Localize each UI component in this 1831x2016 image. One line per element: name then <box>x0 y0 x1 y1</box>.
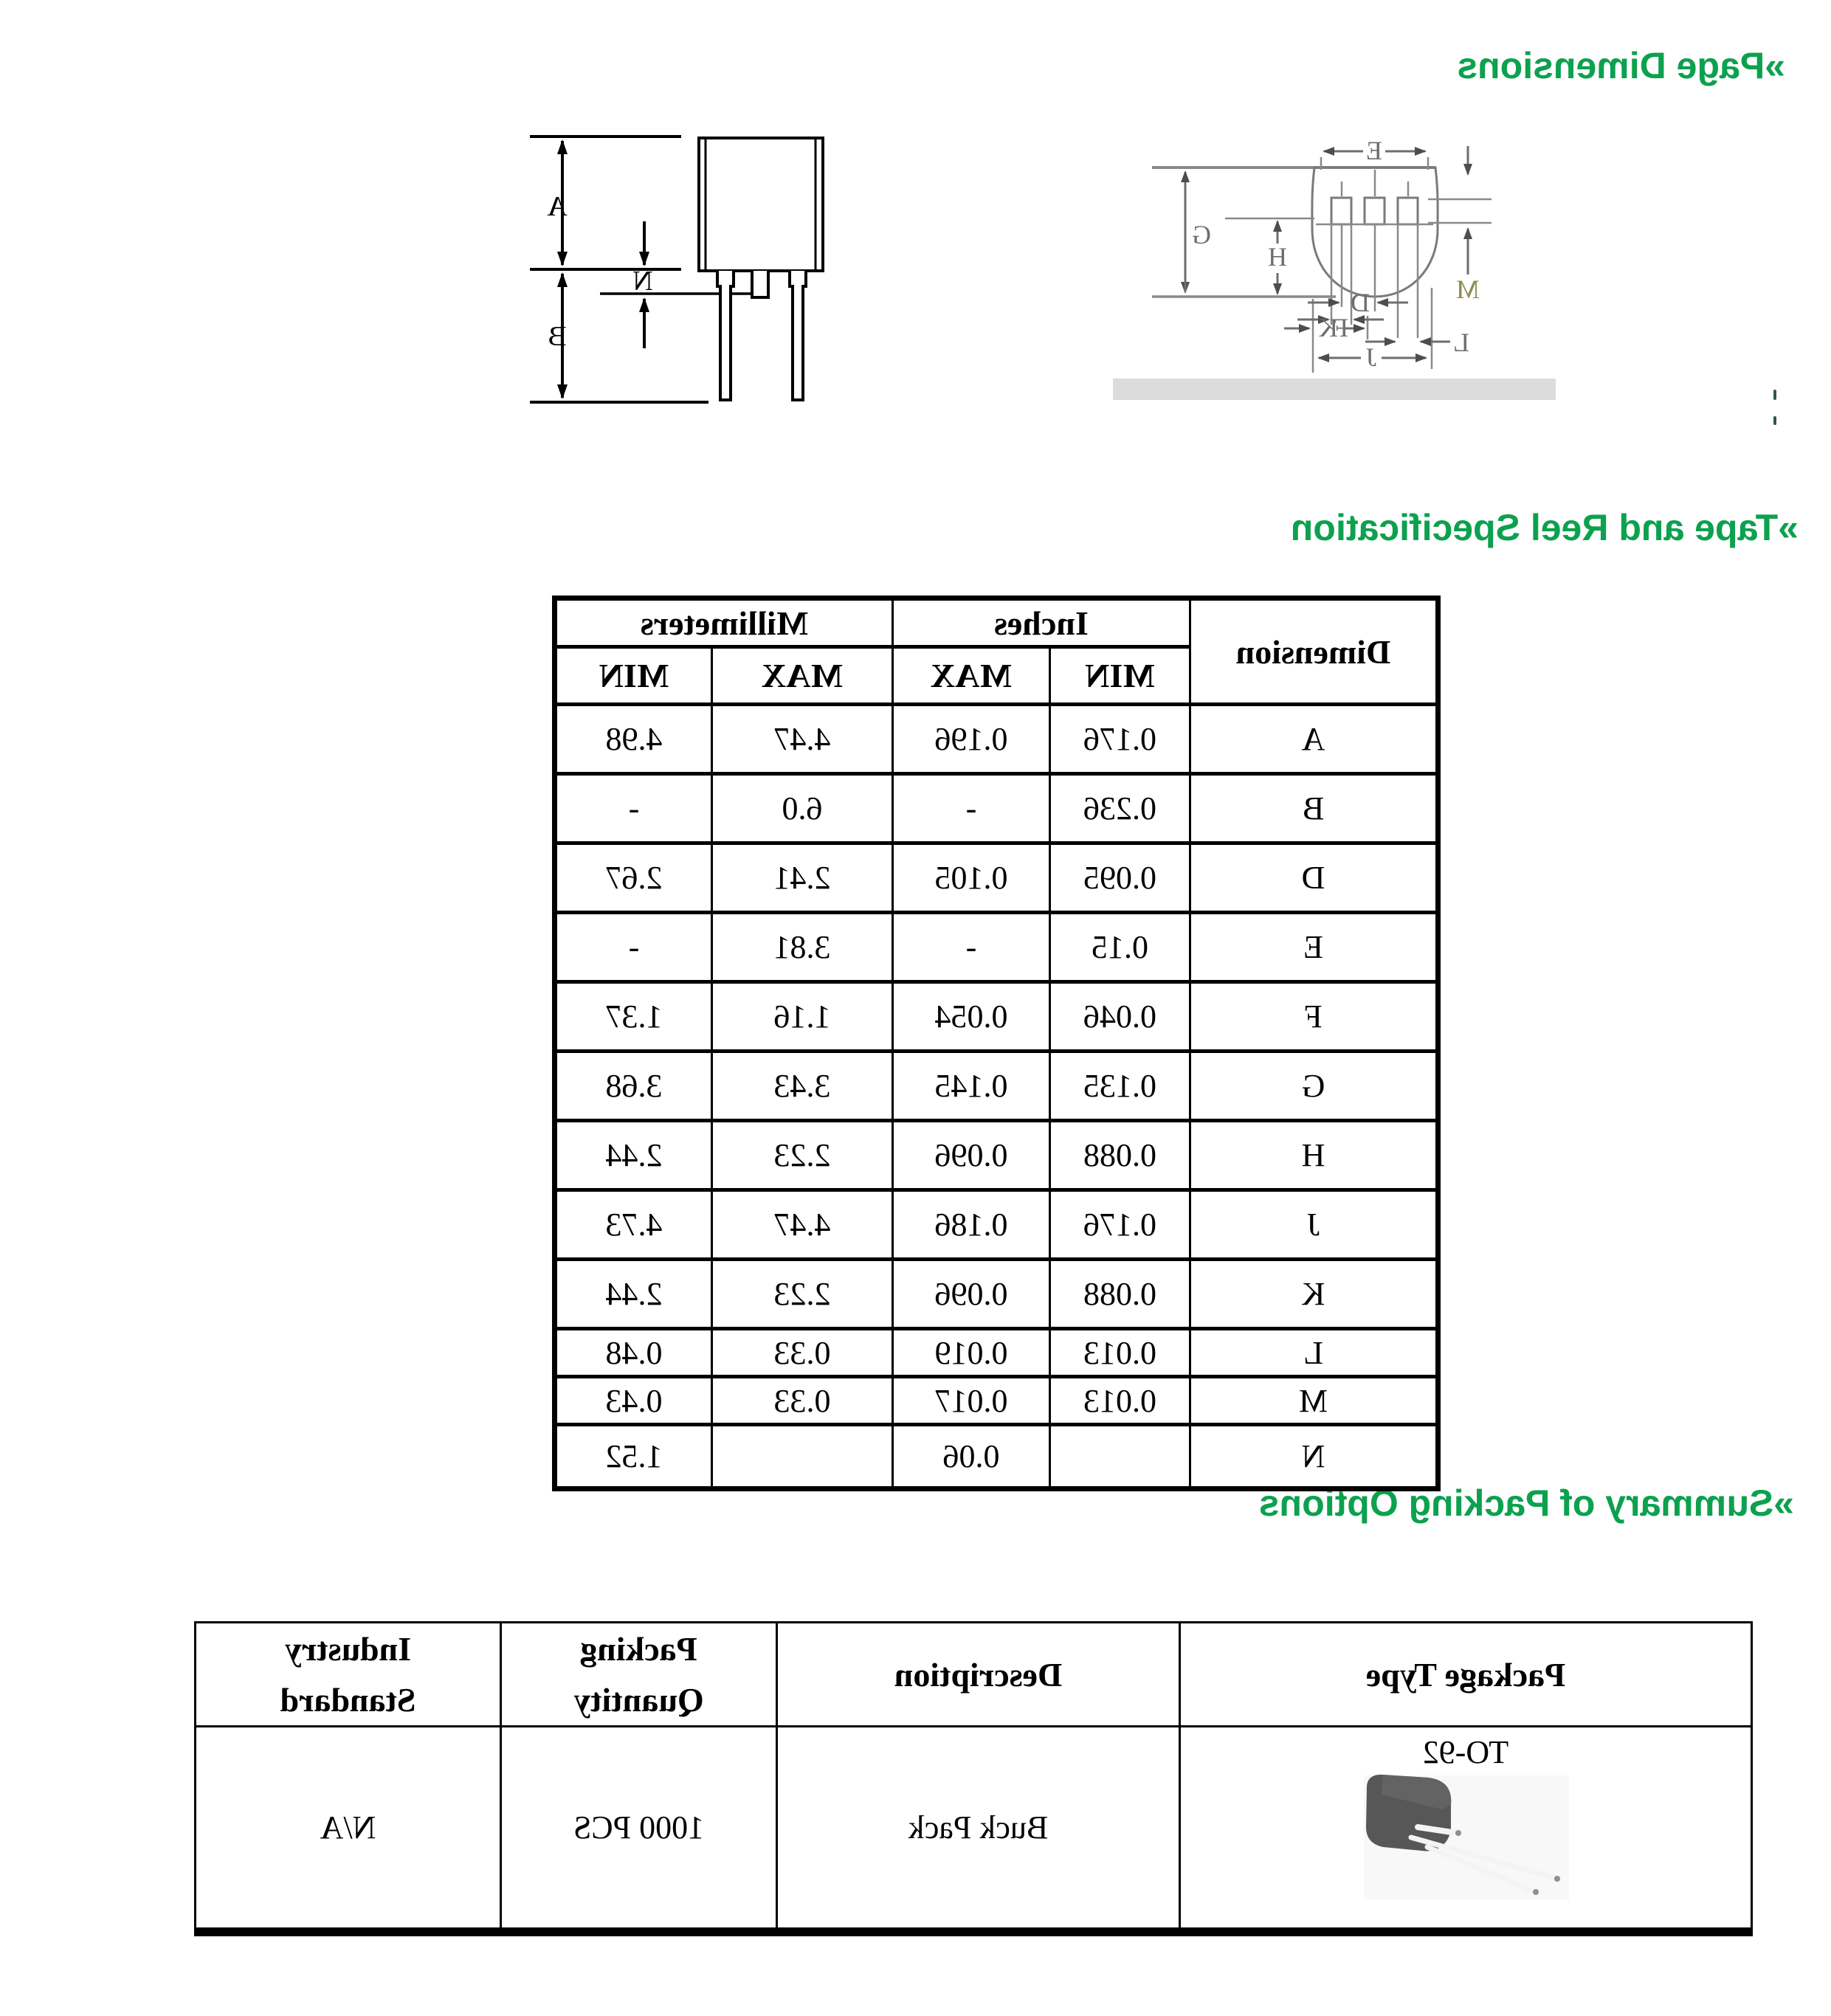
heading-package-dimensions: »Page Dimensions <box>1457 46 1785 86</box>
center-lead-stub-outline <box>752 271 768 297</box>
dims-cell-value: 0.186 <box>893 1190 1050 1260</box>
dim-label-D: D <box>1351 288 1370 317</box>
dims-cell-value: 0.096 <box>893 1260 1050 1329</box>
dims-table-row: K0.0880.0962.232.44 <box>554 1260 1438 1329</box>
heading-tape-reel-specification: »Tape and Reel Specification <box>1291 508 1799 548</box>
dims-cell-dimension: H <box>1190 1121 1438 1190</box>
package-side-view-drawing: A B N <box>529 118 824 413</box>
packing-options-table: Package Type Description Packing Quantit… <box>194 1621 1753 1936</box>
lead-cross-section <box>1398 198 1418 224</box>
packing-cell-packing-quantity: 1000 PCS <box>501 1727 777 1932</box>
dim-label-E: E <box>1366 136 1382 165</box>
dims-subheader: MAX <box>893 647 1050 705</box>
dims-cell-value: 0.013 <box>1050 1377 1190 1425</box>
dims-cell-value: 1.16 <box>712 982 893 1052</box>
dims-cell-value: 0.06 <box>893 1425 1050 1489</box>
packing-header-packing-quantity: Packing Quantity <box>501 1623 777 1727</box>
dims-cell-value: 0.176 <box>1050 1190 1190 1260</box>
packing-data-row: TO-92 <box>196 1727 1752 1932</box>
dims-cell-value: 4.47 <box>712 1190 893 1260</box>
dims-cell-value: 0.088 <box>1050 1121 1190 1190</box>
dims-cell-value: 1.37 <box>554 982 711 1052</box>
scan-shadow-bar <box>1113 379 1556 400</box>
packing-cell-description: Buck Pack <box>777 1727 1180 1932</box>
dims-cell-dimension: K <box>1190 1260 1438 1329</box>
dims-cell-dimension: J <box>1190 1190 1438 1260</box>
dims-cell-dimension: L <box>1190 1329 1438 1377</box>
dims-table-row: L0.0130.0190.330.48 <box>554 1329 1438 1377</box>
dims-table-row: F0.0460.0541.161.37 <box>554 982 1438 1052</box>
dims-cell-dimension: G <box>1190 1052 1438 1121</box>
package-body-outline <box>699 138 823 271</box>
dims-cell-value: - <box>893 774 1050 843</box>
dims-table-row: D0.0950.1052.412.67 <box>554 843 1438 913</box>
dims-cell-value: 2.67 <box>554 843 711 913</box>
dims-subheader: MIN <box>554 647 711 705</box>
scan-artifact-tick <box>1773 390 1776 400</box>
dims-cell-value: 0.33 <box>712 1329 893 1377</box>
dims-cell-value: - <box>554 774 711 843</box>
dims-header-inches: Inches <box>893 598 1190 647</box>
dims-cell-value: 0.095 <box>1050 843 1190 913</box>
dims-cell-value: 0.135 <box>1050 1052 1190 1121</box>
dims-cell-value <box>1050 1425 1190 1489</box>
packing-quantity-line2: Quantity <box>502 1674 776 1725</box>
lead-cross-section <box>1331 198 1351 224</box>
packing-quantity-line1: Packing <box>502 1623 776 1674</box>
dims-cell-value: 0.236 <box>1050 774 1190 843</box>
dims-cell-value: 3.81 <box>712 913 893 982</box>
dims-cell-value: 0.046 <box>1050 982 1190 1052</box>
dims-cell-value: 4.73 <box>554 1190 711 1260</box>
lead-tip <box>1554 1876 1560 1882</box>
dims-cell-value: 0.176 <box>1050 705 1190 774</box>
dimensions-table-body: A0.1760.1964.474.98B0.236-6.0-D0.0950.10… <box>554 705 1438 1489</box>
dims-cell-value: - <box>893 913 1050 982</box>
dims-cell-value: 2.41 <box>712 843 893 913</box>
dims-cell-value: 2.44 <box>554 1260 711 1329</box>
dims-table-row: G0.1350.1453.433.68 <box>554 1052 1438 1121</box>
dims-cell-value: 3.68 <box>554 1052 711 1121</box>
dim-label-L: L <box>1453 328 1469 357</box>
dim-label-G: G <box>1192 220 1211 249</box>
dims-cell-value: 0.145 <box>893 1052 1050 1121</box>
dims-cell-value: 2.23 <box>712 1121 893 1190</box>
dims-cell-value: 1.52 <box>554 1425 711 1489</box>
dims-table-row: J0.1760.1864.474.73 <box>554 1190 1438 1260</box>
dim-label-A: A <box>547 191 568 222</box>
lead-tip <box>1455 1830 1461 1836</box>
package-type-value: TO-92 <box>1423 1733 1509 1771</box>
dims-cell-dimension: A <box>1190 705 1438 774</box>
dims-cell-value: 0.48 <box>554 1329 711 1377</box>
industry-standard-line2: Standard <box>196 1674 500 1725</box>
dims-subheader: MAX <box>712 647 893 705</box>
dims-cell-dimension: B <box>1190 774 1438 843</box>
lead-outline <box>790 271 806 400</box>
dims-cell-dimension: F <box>1190 982 1438 1052</box>
package-type-content: TO-92 <box>1181 1727 1751 1907</box>
dims-cell-value: 4.98 <box>554 705 711 774</box>
dims-cell-value: 0.088 <box>1050 1260 1190 1329</box>
packing-cell-industry-standard: N/A <box>196 1727 501 1932</box>
dims-table-row: A0.1760.1964.474.98 <box>554 705 1438 774</box>
dims-cell-value: 2.23 <box>712 1260 893 1329</box>
dims-cell-value: 3.43 <box>712 1052 893 1121</box>
dims-cell-value: 0.017 <box>893 1377 1050 1425</box>
packing-header-row: Package Type Description Packing Quantit… <box>196 1623 1752 1727</box>
packing-header-package-type: Package Type <box>1180 1623 1752 1727</box>
dims-cell-dimension: D <box>1190 843 1438 913</box>
dims-cell-dimension: M <box>1190 1377 1438 1425</box>
dims-cell-value: 0.013 <box>1050 1329 1190 1377</box>
dims-cell-value: 0.105 <box>893 843 1050 913</box>
dim-label-M: M <box>1456 275 1480 304</box>
dims-header-dimension: Dimension <box>1190 598 1438 705</box>
dims-header-group-row: Dimension Inches Millimeters <box>554 598 1438 647</box>
lead-cross-section <box>1365 198 1385 224</box>
dim-label-N: N <box>632 266 652 297</box>
dims-cell-value: - <box>554 913 711 982</box>
dimensions-table: Dimension Inches Millimeters MIN MAX MAX… <box>552 596 1441 1491</box>
to92-package-image <box>1362 1774 1569 1907</box>
packing-header-industry-standard: Industry Standard <box>196 1623 501 1727</box>
dims-cell-value: 0.33 <box>712 1377 893 1425</box>
dims-table-row: B0.236-6.0- <box>554 774 1438 843</box>
lead-outline <box>717 271 734 400</box>
dim-label-J: J <box>1366 342 1376 372</box>
dims-cell-value: 0.054 <box>893 982 1050 1052</box>
dims-cell-value: 0.43 <box>554 1377 711 1425</box>
dims-cell-value: 6.0 <box>712 774 893 843</box>
dims-cell-value: 2.44 <box>554 1121 711 1190</box>
dims-cell-value <box>712 1425 893 1489</box>
dims-cell-value: 0.019 <box>893 1329 1050 1377</box>
packing-header-description: Description <box>777 1623 1180 1727</box>
lead-tip <box>1533 1889 1539 1895</box>
dims-subheader: MIN <box>1050 647 1190 705</box>
dims-cell-value: 0.15 <box>1050 913 1190 982</box>
dims-table-row: E0.15-3.81- <box>554 913 1438 982</box>
industry-standard-line1: Industry <box>196 1623 500 1674</box>
dims-cell-dimension: E <box>1190 913 1438 982</box>
dims-header-millimeters: Millimeters <box>554 598 892 647</box>
datasheet-page: »Page Dimensions »Tape and Reel Specific… <box>0 0 1831 2016</box>
dims-table-row: H0.0880.0962.232.44 <box>554 1121 1438 1190</box>
package-bottom-view-drawing: E G H M F L D K J <box>1107 118 1594 413</box>
dim-label-K: K <box>1319 313 1338 342</box>
packing-cell-package-type: TO-92 <box>1180 1727 1752 1932</box>
scan-artifact-tick <box>1773 416 1776 425</box>
dims-cell-dimension: N <box>1190 1425 1438 1489</box>
dim-label-B: B <box>548 321 566 352</box>
dims-cell-value: 0.196 <box>893 705 1050 774</box>
dims-table-row: M0.0130.0170.330.43 <box>554 1377 1438 1425</box>
dims-table-row: N0.061.52 <box>554 1425 1438 1489</box>
dim-label-H: H <box>1268 242 1287 272</box>
dims-cell-value: 0.096 <box>893 1121 1050 1190</box>
dims-cell-value: 4.47 <box>712 705 893 774</box>
